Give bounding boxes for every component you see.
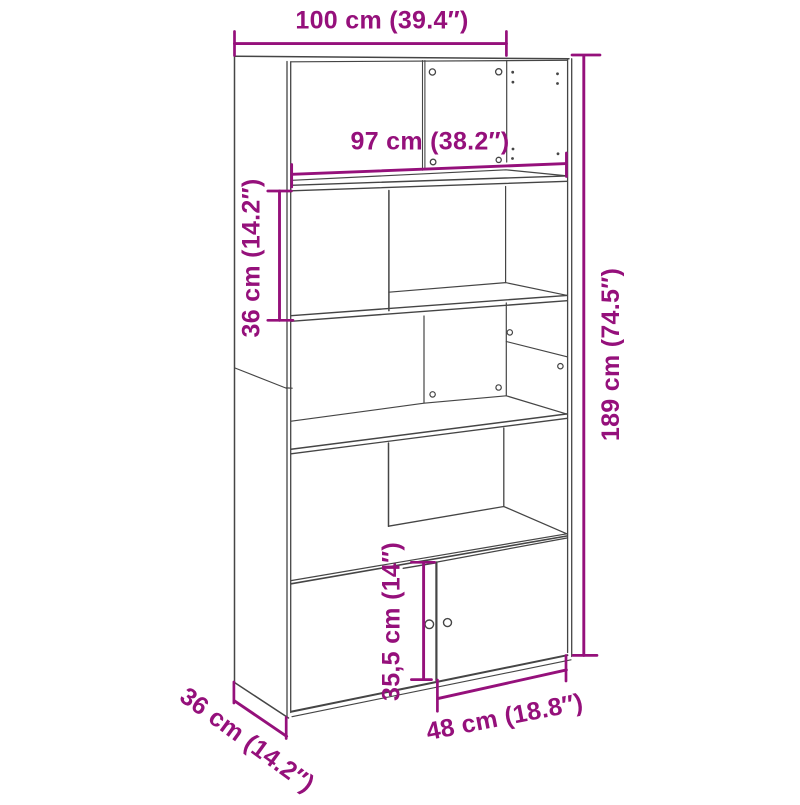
svg-text:97 cm (38.2″): 97 cm (38.2″) [350,128,509,156]
svg-text:189 cm (74.5″): 189 cm (74.5″) [597,268,625,441]
svg-text:35,5 cm (14″): 35,5 cm (14″) [378,542,406,701]
svg-text:100 cm (39.4″): 100 cm (39.4″) [295,7,468,35]
svg-text:36 cm (14.2″): 36 cm (14.2″) [238,178,266,337]
